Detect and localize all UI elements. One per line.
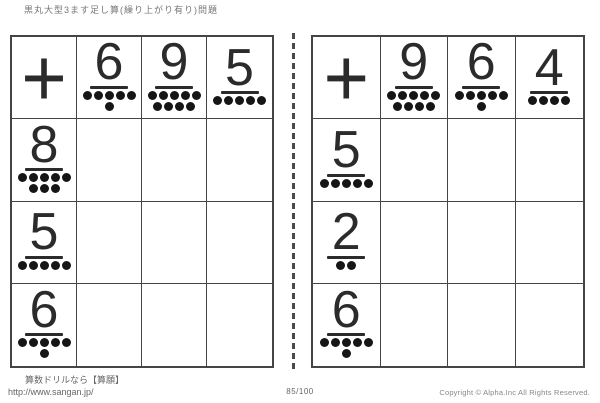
answer-cell[interactable]: [142, 284, 207, 366]
dot-row: [454, 91, 509, 100]
counting-dot: [62, 261, 71, 270]
counting-dot: [18, 173, 27, 182]
number-underline: [25, 168, 63, 171]
answer-cell[interactable]: [448, 284, 516, 366]
answer-cell[interactable]: [77, 119, 142, 201]
dot-row: [152, 102, 196, 111]
row-header-cell: 5: [12, 202, 77, 284]
plus-operator-icon: +: [323, 53, 369, 102]
dot-row: [17, 338, 72, 347]
dot-row: [527, 96, 571, 105]
number-label: 9: [399, 42, 428, 83]
number-with-dots: 6: [454, 42, 509, 113]
dot-row: [28, 184, 61, 193]
counting-dot: [40, 184, 49, 193]
answer-cell[interactable]: [77, 284, 142, 366]
plus-cell: +: [12, 37, 77, 119]
counting-dot: [105, 102, 114, 111]
counting-dot: [40, 338, 49, 347]
dot-row: [335, 261, 357, 270]
counting-dot: [499, 91, 508, 100]
number-label: 9: [160, 42, 189, 83]
number-with-dots: 8: [17, 125, 72, 196]
counting-dot: [431, 91, 440, 100]
dot-row: [39, 349, 50, 358]
counting-dot: [353, 338, 362, 347]
counting-dot: [387, 91, 396, 100]
counting-dot: [170, 91, 179, 100]
counting-dot: [51, 261, 60, 270]
page-title: 黒丸大型3ます足し算(繰り上がり有り)問題: [24, 3, 218, 16]
counting-dot: [347, 261, 356, 270]
number-with-dots: 6: [82, 42, 137, 113]
counting-dot: [153, 102, 162, 111]
number-label: 6: [30, 290, 59, 331]
counting-dot: [409, 91, 418, 100]
number-with-dots: 6: [319, 290, 374, 361]
number-label: 6: [95, 42, 124, 83]
footer-site-info: 算数ドリルなら【算願】 http://www.sangan.jp/: [8, 374, 124, 398]
plus-cell: +: [313, 37, 381, 119]
counting-dot: [477, 91, 486, 100]
counting-dot: [62, 173, 71, 182]
counting-dot: [51, 338, 60, 347]
number-label: 4: [535, 48, 564, 89]
counting-dot: [246, 96, 255, 105]
counting-dot: [40, 261, 49, 270]
column-header-cell: 4: [516, 37, 584, 119]
counting-dot: [415, 102, 424, 111]
dot-row: [212, 96, 267, 105]
counting-dot: [235, 96, 244, 105]
number-underline: [327, 256, 365, 259]
number-underline: [25, 333, 63, 336]
answer-cell[interactable]: [207, 119, 272, 201]
answer-cell[interactable]: [142, 202, 207, 284]
counting-dot: [342, 338, 351, 347]
counting-dot: [164, 102, 173, 111]
dot-row: [17, 173, 72, 182]
number-underline: [462, 86, 500, 89]
number-underline: [221, 91, 259, 94]
site-label: 算数ドリルなら【算願】: [25, 374, 124, 386]
row-header-cell: 6: [313, 284, 381, 366]
counting-dot: [40, 173, 49, 182]
answer-cell[interactable]: [516, 202, 584, 284]
number-label: 5: [225, 48, 254, 89]
number-label: 6: [332, 290, 361, 331]
number-label: 6: [467, 42, 496, 83]
column-header-cell: 6: [448, 37, 516, 119]
row-header-cell: 8: [12, 119, 77, 201]
counting-dot: [404, 102, 413, 111]
counting-dot: [105, 91, 114, 100]
counting-dot: [62, 338, 71, 347]
counting-dot: [342, 349, 351, 358]
counting-dot: [186, 102, 195, 111]
addition-grid-left: +695856: [10, 35, 274, 368]
page-counter: 85/100: [286, 387, 313, 396]
counting-dot: [116, 91, 125, 100]
counting-dot: [364, 179, 373, 188]
answer-cell[interactable]: [207, 202, 272, 284]
counting-dot: [336, 261, 345, 270]
row-header-cell: 6: [12, 284, 77, 366]
counting-dot: [257, 96, 266, 105]
counting-dot: [539, 96, 548, 105]
number-underline: [90, 86, 128, 89]
site-url[interactable]: http://www.sangan.jp/: [8, 386, 124, 398]
answer-cell[interactable]: [142, 119, 207, 201]
counting-dot: [159, 91, 168, 100]
center-dashed-divider: [292, 33, 295, 370]
counting-dot: [51, 173, 60, 182]
answer-cell[interactable]: [448, 202, 516, 284]
number-with-dots: 5: [212, 48, 267, 108]
counting-dot: [466, 91, 475, 100]
counting-dot: [18, 338, 27, 347]
answer-cell[interactable]: [516, 284, 584, 366]
counting-dot: [224, 96, 233, 105]
number-with-dots: 5: [17, 212, 72, 272]
column-header-cell: 6: [77, 37, 142, 119]
row-header-cell: 2: [313, 202, 381, 284]
answer-cell[interactable]: [448, 119, 516, 201]
number-with-dots: 9: [147, 42, 202, 113]
dot-row: [476, 102, 487, 111]
number-with-dots: 4: [527, 48, 571, 108]
plus-operator-icon: +: [21, 53, 67, 102]
dot-row: [392, 102, 436, 111]
counting-dot: [364, 338, 373, 347]
number-underline: [155, 86, 193, 89]
column-header-cell: 9: [142, 37, 207, 119]
number-underline: [327, 174, 365, 177]
number-with-dots: 2: [327, 212, 365, 272]
counting-dot: [175, 102, 184, 111]
number-label: 8: [30, 125, 59, 166]
dot-row: [17, 261, 72, 270]
number-with-dots: 6: [17, 290, 72, 361]
counting-dot: [320, 179, 329, 188]
number-underline: [327, 333, 365, 336]
dot-row: [82, 91, 137, 100]
answer-cell[interactable]: [381, 119, 449, 201]
dot-row: [386, 91, 441, 100]
counting-dot: [148, 91, 157, 100]
number-with-dots: 9: [386, 42, 441, 113]
number-underline: [395, 86, 433, 89]
dot-row: [147, 91, 202, 100]
counting-dot: [477, 102, 486, 111]
counting-dot: [528, 96, 537, 105]
counting-dot: [398, 91, 407, 100]
copyright-notice: Copyright © Alpha.Inc All Rights Reserve…: [439, 388, 590, 397]
counting-dot: [353, 179, 362, 188]
number-label: 5: [30, 212, 59, 253]
counting-dot: [320, 338, 329, 347]
counting-dot: [40, 349, 49, 358]
answer-cell[interactable]: [77, 202, 142, 284]
counting-dot: [488, 91, 497, 100]
counting-dot: [29, 261, 38, 270]
answer-cell[interactable]: [207, 284, 272, 366]
number-label: 5: [332, 130, 361, 171]
counting-dot: [94, 91, 103, 100]
column-header-cell: 5: [207, 37, 272, 119]
counting-dot: [18, 261, 27, 270]
counting-dot: [192, 91, 201, 100]
counting-dot: [455, 91, 464, 100]
answer-cell[interactable]: [381, 202, 449, 284]
number-underline: [25, 256, 63, 259]
counting-dot: [213, 96, 222, 105]
counting-dot: [550, 96, 559, 105]
counting-dot: [561, 96, 570, 105]
counting-dot: [29, 338, 38, 347]
answer-cell[interactable]: [516, 119, 584, 201]
worksheet-page: 黒丸大型3ます足し算(繰り上がり有り)問題 +695856 +964526 算数…: [0, 0, 600, 403]
column-header-cell: 9: [381, 37, 449, 119]
dot-row: [104, 102, 115, 111]
number-underline: [530, 91, 568, 94]
counting-dot: [51, 184, 60, 193]
counting-dot: [181, 91, 190, 100]
counting-dot: [331, 179, 340, 188]
addition-grid-right: +964526: [311, 35, 585, 368]
number-label: 2: [332, 212, 361, 253]
answer-cell[interactable]: [381, 284, 449, 366]
counting-dot: [83, 91, 92, 100]
counting-dot: [331, 338, 340, 347]
dot-row: [319, 338, 374, 347]
counting-dot: [29, 184, 38, 193]
row-header-cell: 5: [313, 119, 381, 201]
counting-dot: [342, 179, 351, 188]
counting-dot: [127, 91, 136, 100]
dot-row: [341, 349, 352, 358]
number-with-dots: 5: [319, 130, 374, 190]
counting-dot: [393, 102, 402, 111]
counting-dot: [426, 102, 435, 111]
counting-dot: [420, 91, 429, 100]
counting-dot: [29, 173, 38, 182]
dot-row: [319, 179, 374, 188]
